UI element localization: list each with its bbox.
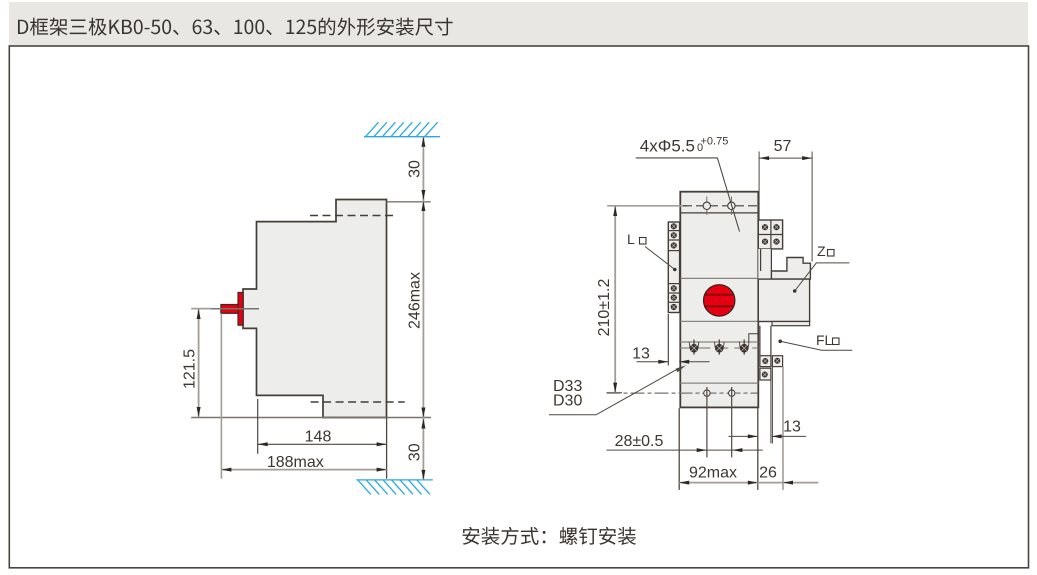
svg-text:210±1.2: 210±1.2 <box>596 279 613 337</box>
svg-text:Z: Z <box>817 243 826 259</box>
svg-text:D30: D30 <box>553 393 582 410</box>
svg-text:121.5: 121.5 <box>181 349 198 389</box>
svg-text:4xΦ5.5: 4xΦ5.5 <box>640 137 695 156</box>
svg-text:FL: FL <box>816 332 833 348</box>
svg-text:246max: 246max <box>406 272 423 329</box>
svg-text:188max: 188max <box>267 454 324 471</box>
svg-text:57: 57 <box>774 138 792 155</box>
svg-text:28±0.5: 28±0.5 <box>615 433 664 450</box>
svg-text:13: 13 <box>783 419 801 436</box>
svg-text:26: 26 <box>759 465 777 482</box>
svg-text:30: 30 <box>406 443 423 461</box>
svg-text:13: 13 <box>632 346 650 363</box>
svg-text:30: 30 <box>406 160 423 178</box>
svg-text:+0.75: +0.75 <box>701 136 729 148</box>
svg-text:L: L <box>627 231 635 247</box>
svg-text:148: 148 <box>305 428 332 445</box>
svg-text:92max: 92max <box>689 465 737 482</box>
